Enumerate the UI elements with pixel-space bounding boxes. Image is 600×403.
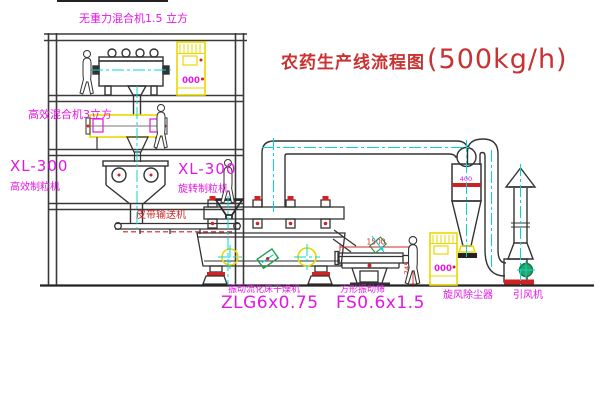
- building-frame: [44, 33, 247, 285]
- panel-display: 000: [182, 76, 200, 86]
- label-granulator-right-name: 旋转制粒机: [178, 185, 228, 196]
- control-cabinet-top: 000: [177, 42, 205, 95]
- control-cabinet-ground: 000: [430, 233, 457, 285]
- label-gravity-mixer: 无重力混合机1.5 立方: [79, 13, 188, 25]
- title-text: 农药生产线流程图: [281, 48, 425, 73]
- label-sieve-model: FS0.6x1.5: [336, 295, 425, 313]
- title-capacity: (500kg/h): [427, 44, 568, 75]
- label-granulator-left-model: XL-300: [10, 159, 68, 175]
- gravity-mixer: [93, 49, 169, 115]
- label-belt-conveyor: 皮带输送机: [136, 211, 186, 222]
- label-granulator-right-model: XL-300: [178, 162, 236, 178]
- label-dryer-model: ZLG6x0.75: [221, 295, 319, 313]
- person-figure: [80, 51, 93, 95]
- label-mixer2: 高效混合机3立方: [28, 109, 112, 121]
- page-title: 农药生产线流程图 (500kg/h): [281, 44, 568, 75]
- label-fan: 引风机: [513, 291, 543, 302]
- label-cyclone: 旋风除尘器: [443, 291, 493, 302]
- panel-display: 000: [434, 264, 452, 274]
- diagram-canvas: 000: [0, 0, 600, 403]
- label-granulator-left-name: 高效制粒机: [10, 183, 60, 194]
- person-figure: [405, 237, 419, 284]
- belt-conveyor: [115, 223, 241, 234]
